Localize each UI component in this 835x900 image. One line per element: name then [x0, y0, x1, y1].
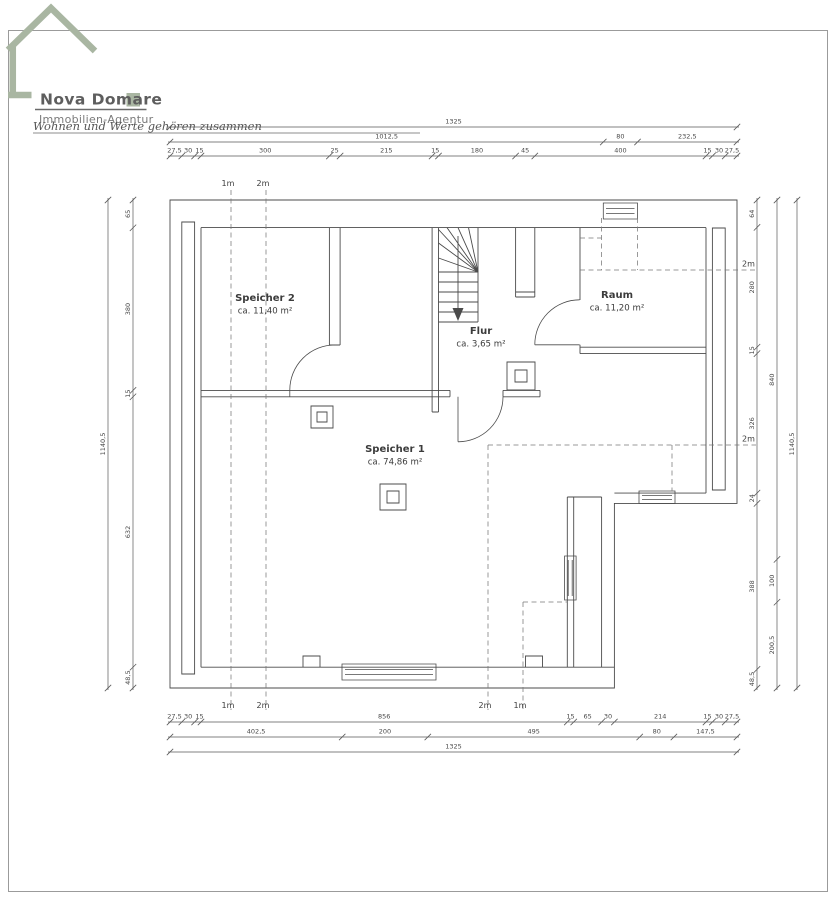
dim-label: 326	[748, 417, 756, 429]
dim-label: 64	[748, 210, 756, 218]
dim-label: 1325	[445, 743, 462, 751]
dim-label: 388	[748, 580, 756, 592]
agency-logo: Nova Domare Immobilien-Agentur Wohnen un…	[8, 8, 420, 133]
room-name-flur: Flur	[470, 326, 492, 337]
dim-label: 856	[378, 713, 390, 721]
dim-label: 200	[379, 728, 391, 736]
window-shaft	[565, 556, 577, 600]
dim-label: 15	[703, 147, 711, 155]
height-label: 2m	[742, 260, 755, 269]
dim-label: 48,5	[124, 670, 132, 684]
dim-label: 632	[124, 526, 132, 538]
dim-label: 48,5	[748, 672, 756, 686]
dim-label: 65	[583, 713, 591, 721]
plan-walls	[170, 200, 737, 688]
room-name-raum: Raum	[601, 290, 633, 301]
dim-label: 45	[521, 147, 529, 155]
dim-label: 232,5	[678, 133, 697, 141]
dim-label: 80	[653, 728, 661, 736]
dim-label: 1012,5	[375, 133, 398, 141]
stair-arrow	[453, 308, 464, 321]
height-label: 1m	[222, 701, 235, 710]
door-speicher2	[290, 345, 335, 397]
floor-plan-svg: Nova Domare Immobilien-Agentur Wohnen un…	[0, 0, 835, 900]
dim-label: 30	[604, 713, 612, 721]
dim-label: 15	[703, 713, 711, 721]
dim-label: 1140,5	[788, 433, 796, 456]
room-name-speicher1: Speicher 1	[365, 444, 425, 455]
dim-label: 25	[331, 147, 339, 155]
window-bottom	[342, 664, 436, 680]
room-area-flur: ca. 3,65 m²	[456, 340, 505, 350]
height-label: 2m	[257, 179, 270, 188]
dim-label: 402,5	[247, 728, 266, 736]
height-label: 2m	[742, 435, 755, 444]
floor-plan-page: Nova Domare Immobilien-Agentur Wohnen un…	[0, 0, 835, 900]
dim-label: 200,5	[768, 636, 776, 655]
dim-label: 30	[184, 713, 192, 721]
window-projection-dashed	[580, 218, 638, 270]
dim-label: 100	[768, 575, 776, 587]
dim-label: 65	[124, 210, 132, 218]
height-lines	[231, 190, 756, 710]
raum-walls	[580, 228, 706, 354]
door-raum	[535, 300, 580, 345]
dim-label: 30	[715, 713, 723, 721]
room-area-raum: ca. 11,20 m²	[590, 304, 645, 314]
flur-column	[516, 228, 535, 297]
dim-label: 27,5	[725, 713, 739, 721]
dim-label: 147,5	[696, 728, 715, 736]
dim-label: 1140,5	[99, 433, 107, 456]
dim-label: 214	[654, 713, 666, 721]
dim-label: 380	[124, 303, 132, 315]
dim-label: 15	[124, 389, 132, 397]
dim-label: 840	[768, 373, 776, 385]
room-name-speicher2: Speicher 2	[235, 293, 295, 304]
dim-label: 15	[195, 147, 203, 155]
room-area-speicher1: ca. 74,86 m²	[368, 458, 423, 468]
door-flur	[458, 397, 503, 442]
dim-ticks	[105, 124, 800, 755]
dim-label: 180	[471, 147, 483, 155]
logo-name: Nova Domare	[40, 91, 162, 109]
dim-label: 1325	[445, 118, 462, 126]
dim-label: 300	[259, 147, 271, 155]
dim-label: 30	[184, 147, 192, 155]
dim-label: 15	[748, 346, 756, 354]
dim-label: 24	[748, 494, 756, 502]
roof-posts	[303, 656, 543, 667]
dim-label: 27,5	[725, 147, 739, 155]
knee-wall-strips	[182, 222, 725, 674]
dim-label: 27,5	[167, 713, 181, 721]
height-label: 2m	[479, 701, 492, 710]
chimney-symbols	[311, 362, 535, 510]
nook-wall-stubs	[503, 390, 540, 396]
height-label: 1m	[514, 701, 527, 710]
height-label: 1m	[222, 179, 235, 188]
dim-label: 15	[566, 713, 574, 721]
height-line-left-pair	[231, 190, 266, 710]
dim-label: 30	[715, 147, 723, 155]
dim-label: 15	[431, 147, 439, 155]
dim-label: 27,5	[167, 147, 181, 155]
height-label: 2m	[257, 701, 270, 710]
dim-label: 400	[614, 147, 626, 155]
outer-wall	[170, 200, 737, 688]
dim-label: 15	[195, 713, 203, 721]
dim-line-left	[108, 198, 133, 690]
window-top	[603, 203, 637, 219]
dimension-lines	[105, 124, 800, 755]
height-line-bottom-right	[488, 445, 672, 710]
dim-label: 80	[616, 133, 624, 141]
dim-label: 280	[748, 281, 756, 293]
room-area-speicher2: ca. 11,40 m²	[238, 307, 293, 317]
logo-slogan: Wohnen und Werte gehören zusammen	[33, 119, 262, 133]
house-icon	[8, 8, 95, 98]
dim-label: 215	[380, 147, 392, 155]
dim-label: 495	[527, 728, 539, 736]
